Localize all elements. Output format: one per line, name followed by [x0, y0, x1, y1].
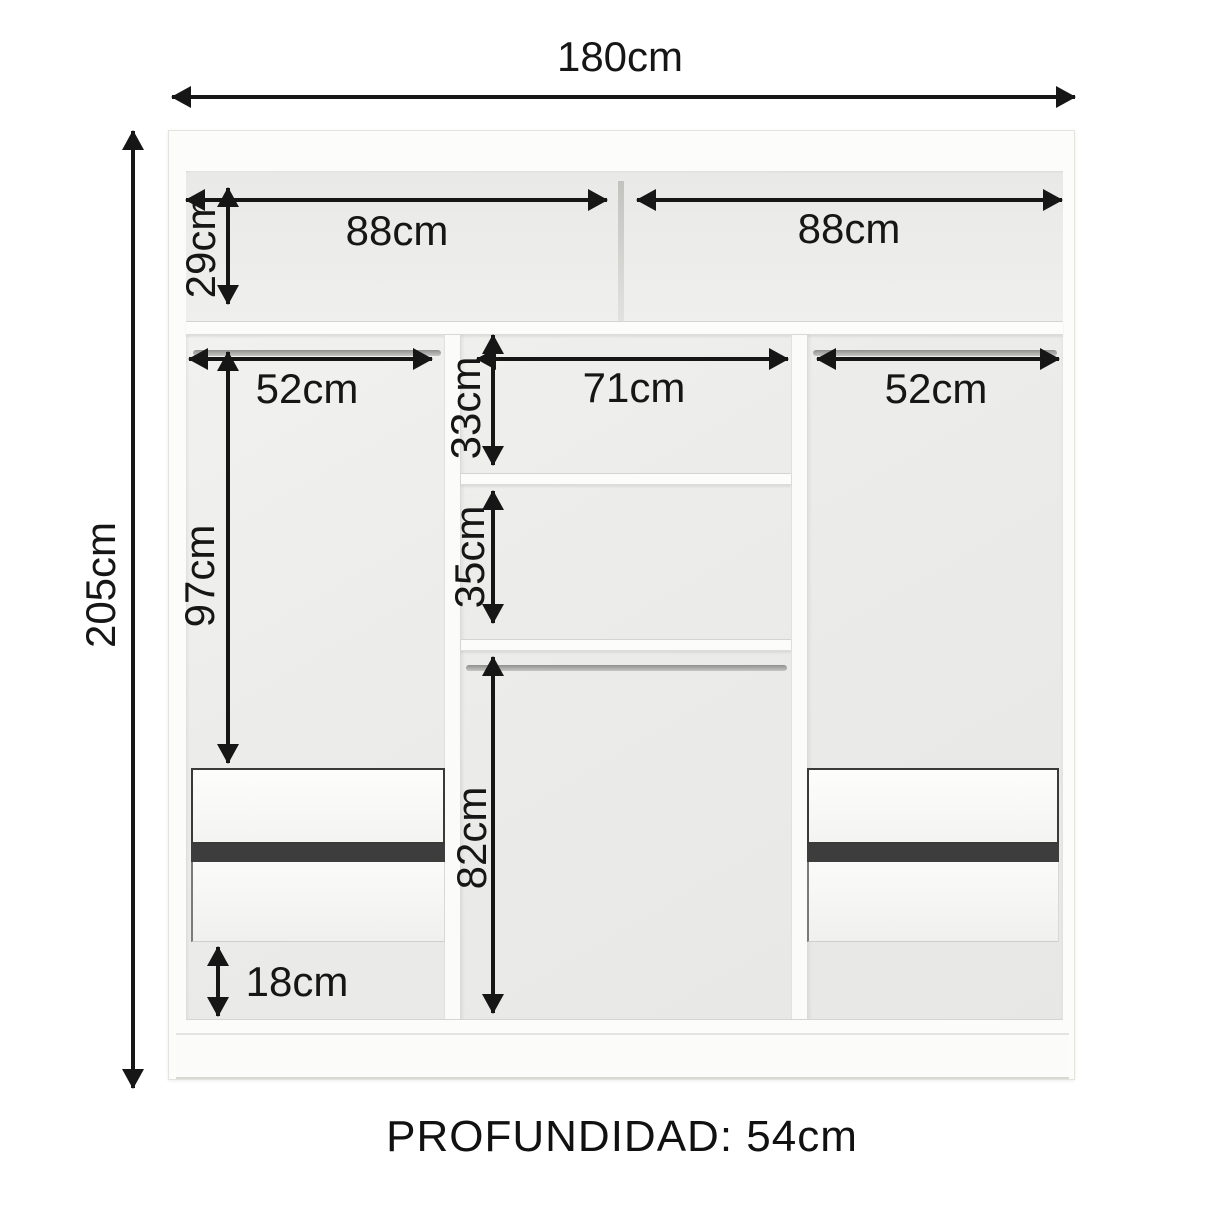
left-drawer-top-face	[191, 768, 445, 844]
dim-top-left-label: 88cm	[346, 210, 449, 252]
depth-label: PROFUNDIDAD: 54cm	[386, 1115, 858, 1159]
dim-bottom-gap-arrow	[216, 947, 220, 1016]
base-panel	[176, 1033, 1069, 1079]
dim-center-height-label: 82cm	[451, 787, 493, 890]
wardrobe	[168, 130, 1075, 1080]
center-shelf-upper	[461, 473, 791, 485]
left-drawer-bottom-face	[191, 862, 445, 942]
dim-top-right-arrow	[637, 198, 1062, 202]
top-cubby-back	[186, 173, 1063, 323]
overall-width-arrow	[172, 95, 1075, 99]
dim-right-rod-arrow	[817, 357, 1059, 361]
dim-top-height-label: 29cm	[180, 196, 222, 299]
dim-top-right-label: 88cm	[798, 208, 901, 250]
right-drawer-gap	[807, 844, 1059, 862]
center-shelf-lower	[461, 639, 791, 651]
dim-shelf-gap-mid-label: 35cm	[449, 506, 491, 609]
overall-height-label: 205cm	[80, 522, 122, 648]
right-drawer-top-face	[807, 768, 1059, 844]
right-drawer-bottom-face	[807, 862, 1059, 942]
dim-shelf-gap-top-arrow	[491, 335, 495, 465]
overall-height-arrow	[131, 131, 135, 1088]
dim-left-height-arrow	[226, 352, 230, 763]
diagram-canvas: 180cm 205cm 88cm 88cm 29cm	[0, 0, 1214, 1214]
top-cubby-divider	[618, 181, 624, 323]
floor-board	[186, 1019, 1063, 1033]
dim-top-height-arrow	[226, 188, 230, 304]
dim-bottom-gap-label: 18cm	[246, 961, 349, 1003]
dim-center-width-arrow	[477, 357, 788, 361]
right-hanging-rod	[813, 350, 1057, 356]
dim-left-height-label: 97cm	[179, 525, 221, 628]
dim-center-width-label: 71cm	[583, 367, 686, 409]
dim-shelf-gap-top-label: 33cm	[445, 357, 487, 460]
top-shelf-board	[186, 321, 1063, 335]
dim-left-rod-label: 52cm	[256, 368, 359, 410]
left-drawer-gap	[191, 844, 445, 862]
dim-top-left-arrow	[186, 198, 607, 202]
left-drawer-stack	[191, 768, 445, 942]
dim-right-rod-label: 52cm	[885, 368, 988, 410]
right-drawer-stack	[807, 768, 1059, 942]
right-divider-panel	[791, 335, 808, 1021]
center-hanging-rod	[466, 665, 787, 671]
overall-width-label: 180cm	[557, 36, 683, 78]
